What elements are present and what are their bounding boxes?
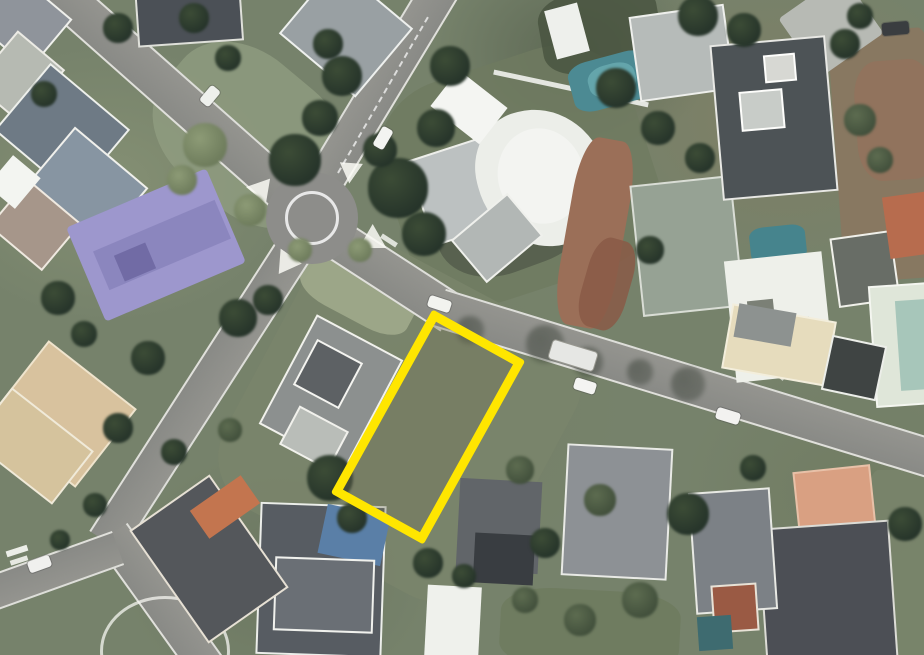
- highlighted-parcel[interactable]: [331, 309, 526, 544]
- satellite-view: Satellite view of a residential neighbor…: [0, 0, 924, 655]
- annotation-layer: [0, 0, 924, 655]
